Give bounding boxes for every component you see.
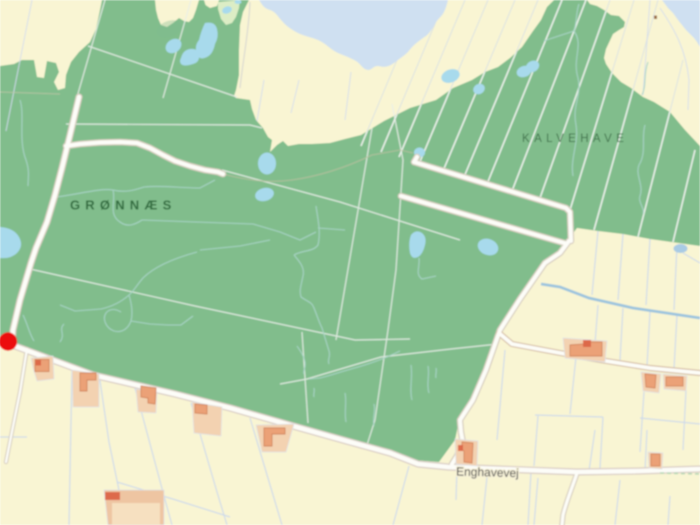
svg-text:Enghavevej: Enghavevej: [456, 465, 519, 481]
svg-text:GRØNNÆS: GRØNNÆS: [70, 198, 176, 213]
svg-text:KALVEHAVE: KALVEHAVE: [522, 133, 628, 145]
